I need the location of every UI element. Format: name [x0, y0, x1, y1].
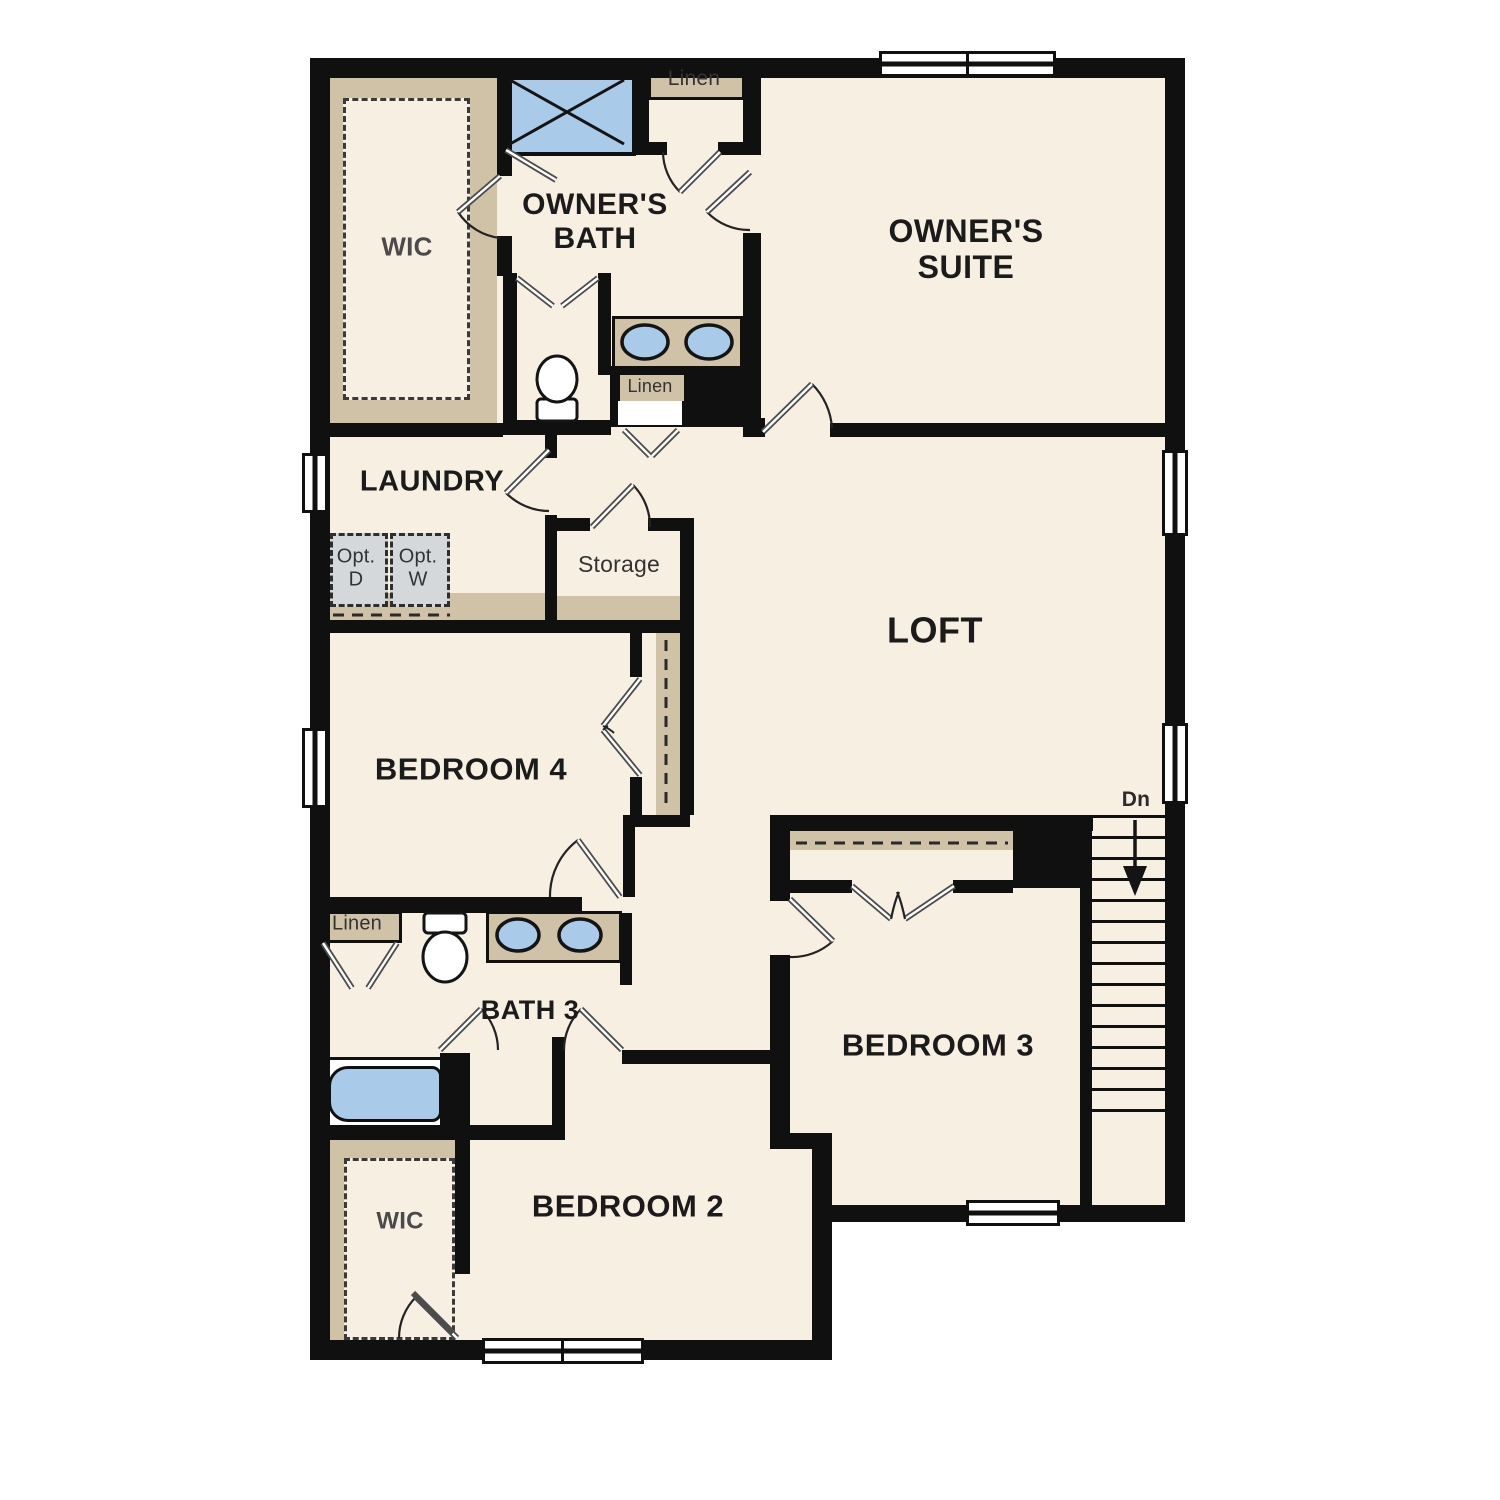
wall: [310, 58, 330, 1360]
bathtub-icon: [328, 1066, 442, 1122]
label-opt-dryer: Opt. D: [337, 545, 376, 590]
wall: [635, 58, 649, 155]
wall: [503, 273, 517, 435]
room-label-laundry: LAUNDRY: [360, 466, 504, 499]
storage-shelf: [557, 596, 680, 622]
window: [966, 51, 1056, 77]
wall: [953, 880, 1013, 893]
window: [1162, 723, 1188, 804]
wall: [630, 777, 642, 815]
wall: [545, 433, 557, 458]
room-label-owners-bath: OWNER'S BATH: [522, 188, 668, 256]
room-label-storage: Storage: [578, 551, 660, 577]
label-stairs-down: Dn: [1122, 788, 1150, 812]
shower: [506, 76, 636, 156]
window: [1162, 450, 1188, 536]
linen-mid-closet-floor: [618, 401, 682, 425]
wall: [1080, 888, 1092, 1207]
wall: [635, 142, 667, 155]
closet-label-linen-mid: Linen: [627, 376, 672, 396]
window: [966, 1200, 1060, 1226]
wall: [552, 1037, 565, 1137]
room-label-loft: LOFT: [887, 611, 983, 652]
wall: [1165, 58, 1185, 1222]
wall: [743, 418, 765, 437]
room-label-bedroom4: BEDROOM 4: [375, 751, 567, 786]
room-label-wic-bottom: WIC: [376, 1207, 423, 1234]
closet-label-linen-bath3: Linen: [332, 913, 382, 936]
wall: [310, 1125, 565, 1140]
floorplan-canvas: WIC OWNER'S BATH Linen OWNER'S SUITE LAU…: [0, 0, 1500, 1500]
wall: [310, 423, 503, 437]
stairs: [1092, 815, 1165, 1114]
wall: [545, 622, 694, 633]
wall: [503, 420, 611, 435]
wall: [718, 142, 745, 155]
room-label-bedroom2: BEDROOM 2: [532, 1188, 724, 1223]
wall: [743, 233, 761, 433]
wall: [623, 825, 635, 897]
room-label-bath3: BATH 3: [481, 995, 580, 1026]
wic-bottom-dashed-area: [344, 1158, 455, 1340]
wall: [630, 633, 642, 677]
bath3-vanity: [486, 911, 622, 963]
wall: [622, 1050, 772, 1064]
room-label-wic-top: WIC: [381, 232, 432, 261]
closet-label-linen-top: Linen: [668, 67, 720, 91]
window: [482, 1338, 565, 1364]
wall: [545, 515, 557, 622]
wall: [743, 58, 761, 155]
bedroom4-closet-shelf: [656, 633, 680, 815]
wall: [770, 955, 790, 1147]
window: [302, 728, 328, 808]
window: [879, 51, 969, 77]
wall: [623, 815, 690, 827]
wall: [680, 518, 694, 815]
window: [302, 453, 328, 513]
wall: [790, 880, 852, 893]
owners-bath-vanity: [612, 316, 743, 372]
wall: [497, 58, 512, 176]
wall: [830, 423, 1185, 437]
wall: [620, 913, 632, 985]
wall: [1013, 815, 1092, 888]
wall: [598, 273, 611, 375]
wall: [455, 1140, 470, 1274]
wall: [812, 1147, 832, 1360]
window: [561, 1338, 644, 1364]
room-label-bedroom3: BEDROOM 3: [842, 1027, 1034, 1062]
wall: [557, 518, 590, 531]
wall: [310, 897, 582, 913]
label-opt-washer: Opt. W: [399, 545, 438, 590]
room-label-owners-suite: OWNER'S SUITE: [888, 213, 1043, 285]
wall: [497, 236, 512, 276]
